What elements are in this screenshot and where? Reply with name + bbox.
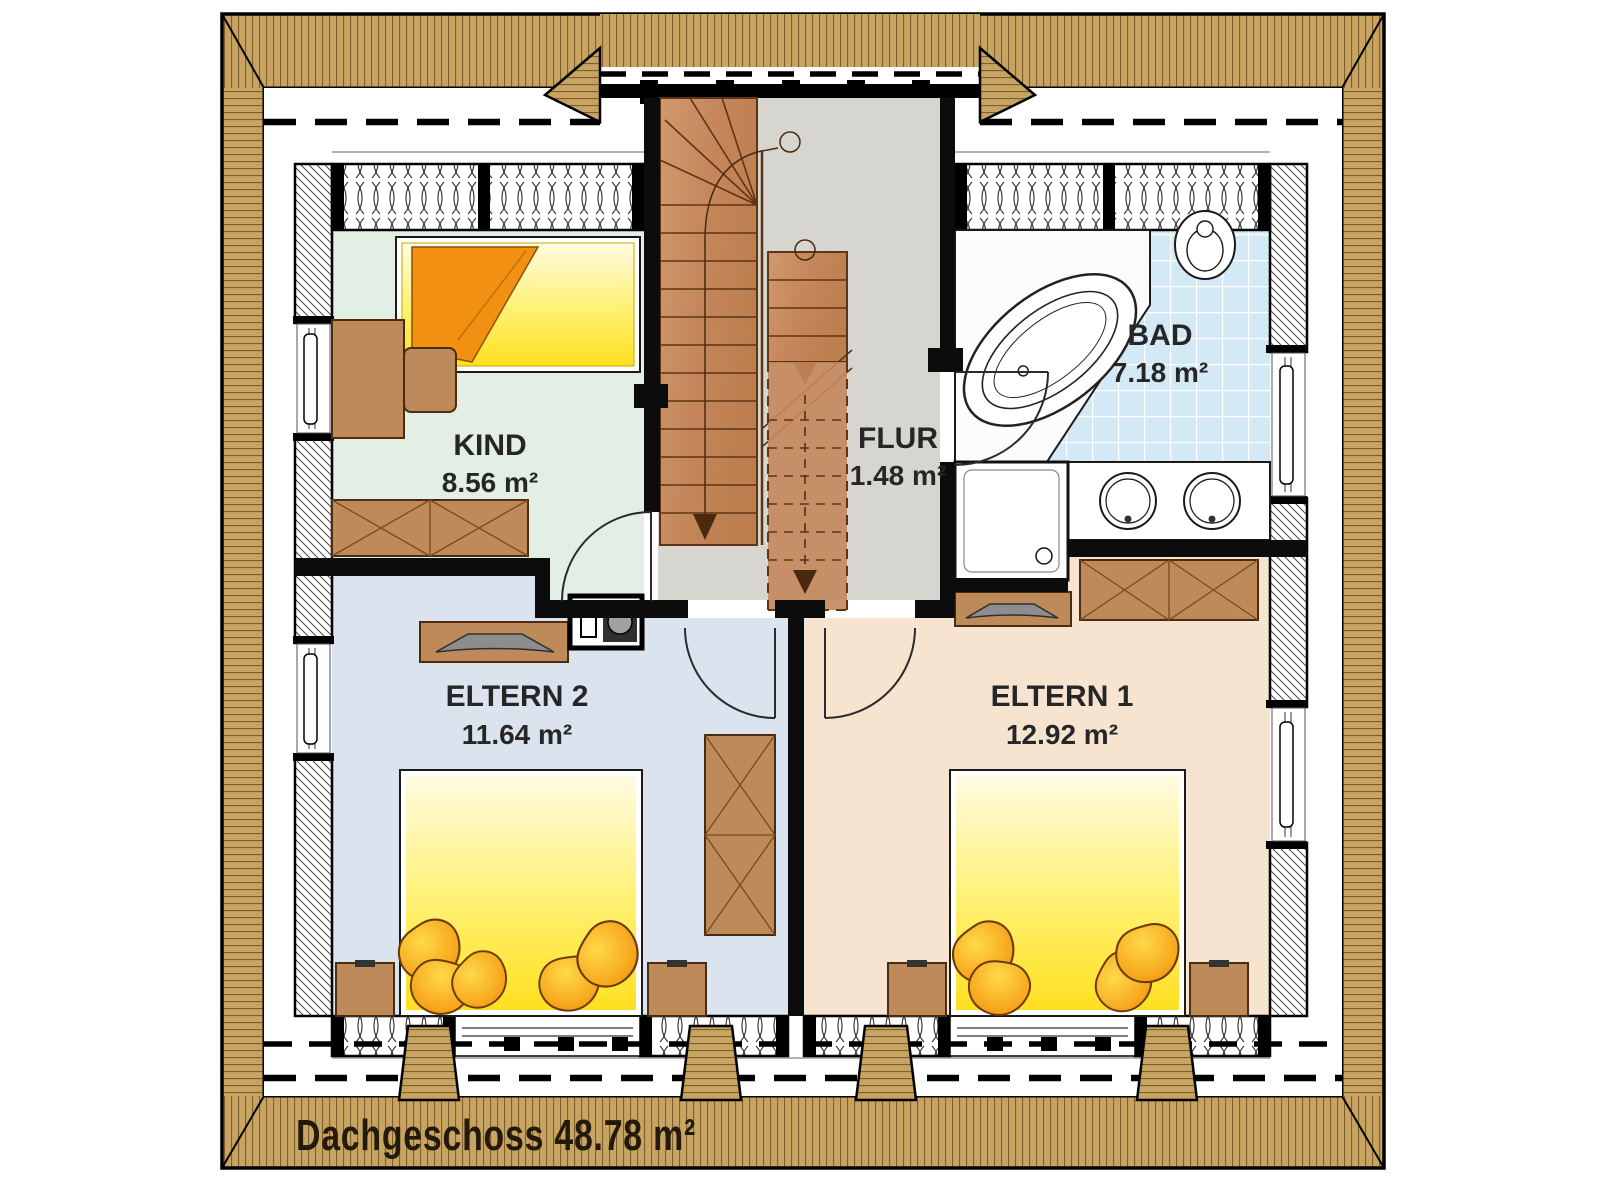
- wall-kind-eltern2-left: [332, 558, 535, 576]
- eltern1-area: 12.92 m²: [1006, 719, 1118, 750]
- eltern1-label: ELTERN 1: [991, 680, 1134, 713]
- radiator: [1280, 722, 1293, 827]
- wall-anchor: [634, 384, 668, 408]
- kind-dresser: [332, 500, 528, 556]
- radiator: [1280, 366, 1293, 484]
- wall-junction-right: [1270, 540, 1307, 557]
- wall-flur-south-mid: [775, 600, 825, 618]
- bad-area: 7.18 m²: [1112, 357, 1209, 388]
- window-left-eltern2: [293, 636, 334, 761]
- kind-desk: [332, 320, 404, 438]
- radiator: [304, 654, 317, 744]
- wall-anchor: [928, 348, 963, 372]
- wall-eltern2-eltern1: [788, 618, 804, 1016]
- eltern1-wardrobe: [1080, 560, 1258, 620]
- wall-kind-stairs: [644, 98, 660, 512]
- eltern2-label: ELTERN 2: [446, 680, 589, 713]
- wall-shower-south: [940, 578, 1068, 592]
- window-right-bad: [1266, 345, 1307, 504]
- bad-label: BAD: [1128, 319, 1193, 352]
- floor-plan-drawing: KIND 8.56 m² FLUR 1.48 m² BAD 7.18 m² EL…: [0, 0, 1600, 1200]
- floor-title: Dachgeschoss 48.78 m²: [296, 1111, 696, 1160]
- eltern2-area: 11.64 m²: [462, 719, 573, 750]
- wall-bad-eltern1: [1068, 540, 1270, 557]
- double-sink-counter: [1068, 462, 1270, 540]
- kind-chair: [404, 348, 456, 412]
- eltern2-bed: [395, 770, 650, 1027]
- radiator: [304, 334, 317, 424]
- eltern1-nightstand-left: [888, 960, 946, 1016]
- wall-flur-south-right: [915, 600, 955, 618]
- eltern1-sideboard-tv: [955, 592, 1071, 626]
- toilet: [1175, 211, 1235, 279]
- wall-junction-left: [295, 558, 332, 576]
- wall-kind-eltern2-right: [535, 600, 688, 618]
- eltern2-nightstand-right: [648, 960, 706, 1016]
- eltern1-bed: [948, 770, 1185, 1027]
- wall-flur-bad-upper: [940, 98, 955, 372]
- kind-label: KIND: [453, 429, 526, 462]
- eltern2-nightstand-left: [336, 960, 394, 1016]
- flur-area: 1.48 m²: [850, 460, 947, 491]
- shower: [955, 462, 1068, 580]
- kind-area: 8.56 m²: [442, 467, 539, 498]
- stair-flight-up: [660, 98, 757, 545]
- eltern2-wardrobe: [705, 735, 775, 935]
- window-right-eltern1: [1266, 700, 1307, 849]
- stair-flight-lower: [768, 252, 847, 362]
- window-left-kind: [293, 316, 334, 441]
- eltern1-nightstand-right: [1190, 960, 1248, 1016]
- floor-plan-page: KIND 8.56 m² FLUR 1.48 m² BAD 7.18 m² EL…: [0, 0, 1600, 1200]
- eltern2-sideboard-tv: [420, 622, 568, 662]
- flur-label: FLUR: [858, 422, 938, 455]
